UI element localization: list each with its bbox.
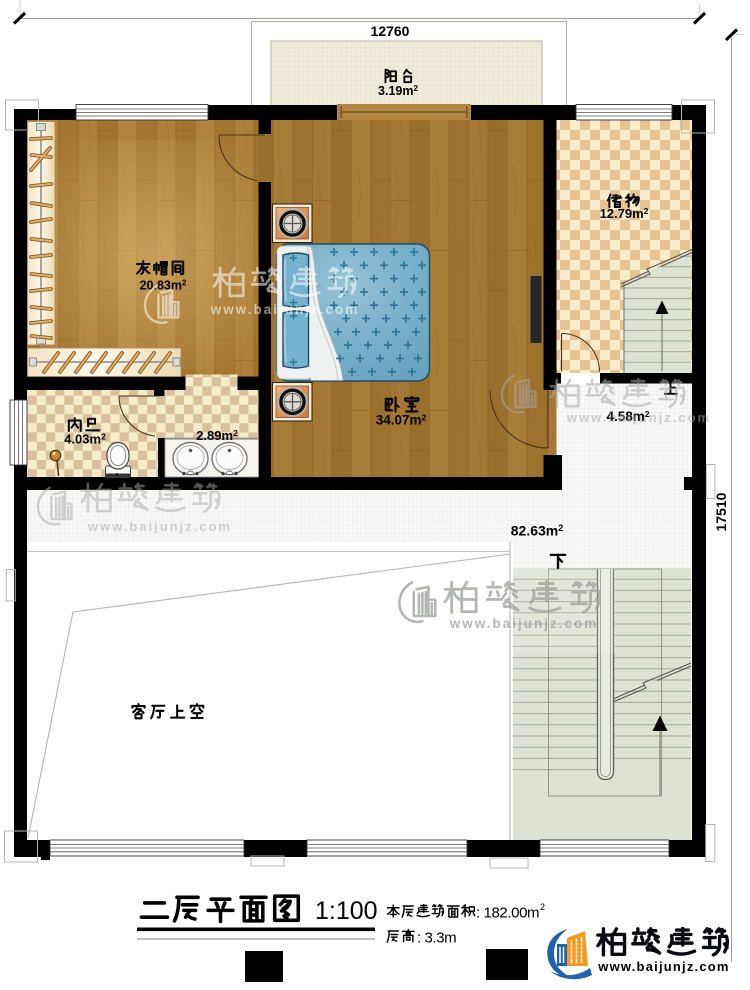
- svg-text:82.63m2: 82.63m2: [511, 523, 564, 539]
- svg-text:3.19m2: 3.19m2: [378, 84, 418, 98]
- svg-text:www.baijunjz.com: www.baijunjz.com: [210, 302, 360, 317]
- svg-text:12760: 12760: [371, 23, 410, 39]
- svg-text:www.baijunjz.com: www.baijunjz.com: [597, 959, 729, 974]
- svg-text:www.baijunjz.com: www.baijunjz.com: [87, 519, 232, 534]
- svg-text:2: 2: [540, 902, 545, 912]
- svg-text:: 182.00m: : 182.00m: [476, 905, 539, 922]
- svg-text:17510: 17510: [713, 492, 729, 531]
- svg-text:: 3.3m: : 3.3m: [417, 930, 456, 947]
- svg-text:2.89m2: 2.89m2: [196, 428, 238, 443]
- svg-text:34.07m2: 34.07m2: [376, 413, 427, 428]
- svg-text:www.baijunjz.com: www.baijunjz.com: [566, 410, 711, 425]
- svg-text:4.03m2: 4.03m2: [64, 432, 106, 447]
- svg-text:www.baijunjz.com: www.baijunjz.com: [449, 616, 599, 631]
- svg-text:20.83m2: 20.83m2: [140, 279, 187, 293]
- svg-text:12.79m2: 12.79m2: [600, 206, 649, 221]
- svg-text:1:100: 1:100: [315, 897, 378, 925]
